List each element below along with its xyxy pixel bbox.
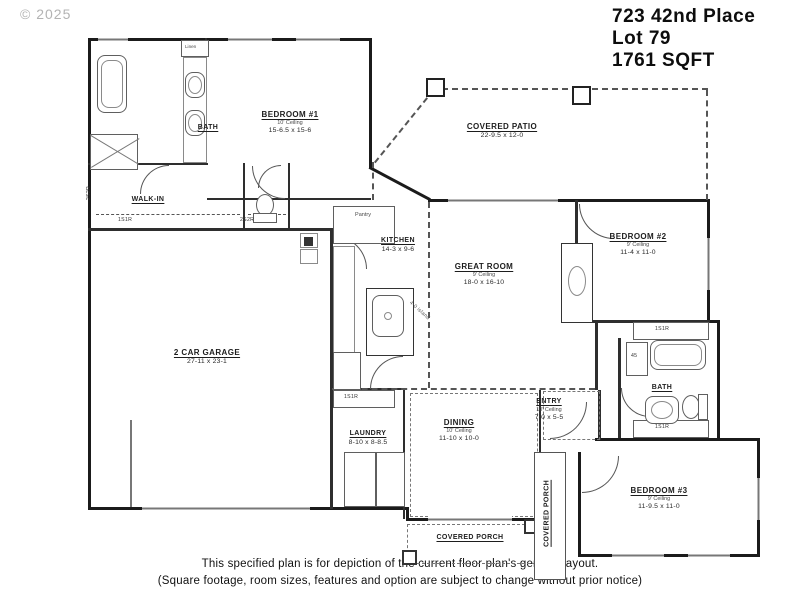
room-label-bedroom3: BEDROOM #3 9' Ceiling 11-9.5 x 11-0 xyxy=(598,486,720,511)
garage-door xyxy=(142,505,310,512)
room-name: BEDROOM #3 xyxy=(598,486,720,496)
dash-patio-diagonal xyxy=(374,90,434,164)
garage-step-line xyxy=(130,420,132,507)
closet-tag-1s1r: 1S1R xyxy=(655,424,669,430)
toilet-tank xyxy=(253,213,277,223)
washer-icon xyxy=(344,452,376,507)
wall-bath2-right xyxy=(717,320,720,441)
porch-post xyxy=(402,550,417,565)
room-dims: 11-4 x 11-0 xyxy=(580,249,696,257)
room-label-porch: COVERED PORCH xyxy=(410,534,530,543)
range-icon xyxy=(304,237,313,246)
patio-post xyxy=(572,86,591,105)
fireplace-inner xyxy=(568,266,586,296)
linen-label: Linen xyxy=(185,44,196,49)
toilet-tank xyxy=(698,394,708,420)
fridge-icon xyxy=(333,352,361,390)
closet-tag-2s2r: 2S2R xyxy=(240,217,254,223)
island-faucet-dot xyxy=(384,312,392,320)
closet-box xyxy=(633,322,709,340)
title-lot: Lot 79 xyxy=(612,28,755,50)
patio-post xyxy=(426,78,445,97)
bathtub-inner xyxy=(101,60,123,108)
closet-tag-1s1r: 1S1R xyxy=(655,326,669,332)
wall-bed3-left xyxy=(578,452,581,557)
wall-bed1-right xyxy=(369,38,372,168)
copyright-note: © 2025 xyxy=(20,6,71,22)
dryer-icon xyxy=(376,452,405,507)
door-arc-walkin xyxy=(140,165,169,194)
room-label-great: GREAT ROOM 9' Ceiling 18-0 x 16-10 xyxy=(428,262,540,287)
room-label-porch-side: COVERED PORCH xyxy=(544,458,553,568)
closet-shelf-dash xyxy=(96,214,240,215)
room-dims: 7-0 x 5-5 xyxy=(512,414,586,422)
wall-great-se xyxy=(595,320,598,390)
room-name: LAUNDRY xyxy=(324,430,412,439)
room-dims: 8-10 x 8-8.5 xyxy=(324,439,412,447)
room-dims: 27-11 x 23-1 xyxy=(145,358,269,366)
room-name: KITCHEN xyxy=(356,237,440,246)
room-dims: 18-0 x 16-10 xyxy=(428,279,540,287)
disclaimer-text: This specified plan is for depiction of … xyxy=(0,556,800,589)
room-name: BEDROOM #1 xyxy=(228,110,352,120)
room-name: COVERED PORCH xyxy=(544,458,553,568)
closet-tag-2s2r-vert: 2S2R xyxy=(86,186,92,200)
window-dining xyxy=(428,516,512,523)
disclaimer-line1: This specified plan is for depiction of … xyxy=(0,556,800,573)
window-bed3-b xyxy=(688,552,730,559)
dash-patio-right xyxy=(706,90,708,200)
room-name: BEDROOM #2 xyxy=(580,232,696,242)
bathtub2-inner xyxy=(654,344,702,366)
laundry-closet xyxy=(333,390,395,408)
window-bath1 xyxy=(98,36,128,43)
patio-slider-door xyxy=(448,197,558,204)
room-name: DINING xyxy=(410,418,508,428)
wall-bed3-bottom xyxy=(580,554,760,557)
room-label-walkin: WALK-IN xyxy=(108,196,188,205)
room-label-pantry: Pantry xyxy=(338,212,388,219)
room-name: GREAT ROOM xyxy=(428,262,540,272)
dash-patio-left xyxy=(372,162,374,200)
room-label-laundry: LAUNDRY 8-10 x 8-8.5 xyxy=(324,430,412,447)
room-name: 2 CAR GARAGE xyxy=(145,348,269,358)
door-arc-laundry xyxy=(370,356,403,389)
dash-patio-top xyxy=(432,88,708,90)
dash-kitchen-great xyxy=(428,202,430,388)
title-sqft: 1761 SQFT xyxy=(612,50,755,72)
room-ceiling: 10' Ceiling xyxy=(228,120,352,127)
dash-porch-outline xyxy=(407,524,535,564)
utility-box xyxy=(300,249,318,264)
room-ceiling: 9' Ceiling xyxy=(428,272,540,279)
room-ceiling: 10' Ceiling xyxy=(410,428,508,435)
window-bed2 xyxy=(705,238,712,290)
floor-plan-sheet: © 2025 723 42nd Place Lot 79 1761 SQFT T… xyxy=(0,0,800,600)
closet-tag-1s1r: 1S1R xyxy=(344,394,358,400)
room-name: BATH xyxy=(634,384,690,393)
closet-tag-1s1r: 1S1R xyxy=(118,217,132,223)
wall-left xyxy=(88,38,91,510)
room-label-bath2: BATH xyxy=(634,384,690,393)
window-bed3-a xyxy=(612,552,664,559)
room-label-patio: COVERED PATIO 22-9.5 x 12-0 xyxy=(440,122,564,140)
wall-step2 xyxy=(717,438,760,441)
room-name: Pantry xyxy=(338,212,388,219)
room-label-bedroom2: BEDROOM #2 9' Ceiling 11-4 x 11-0 xyxy=(580,232,696,257)
room-dims: 15-6.5 x 15-6 xyxy=(228,127,352,135)
window-bed1-b xyxy=(296,36,340,43)
window-bed3-c xyxy=(755,478,762,520)
room-label-garage: 2 CAR GARAGE 27-11 x 23-1 xyxy=(145,348,269,366)
room-name: COVERED PORCH xyxy=(410,534,530,543)
window-bed1-a xyxy=(228,36,272,43)
plan-title-block: 723 42nd Place Lot 79 1761 SQFT xyxy=(612,6,755,72)
wall-diagonal-nook xyxy=(369,166,431,201)
room-dims: 11-9.5 x 11-0 xyxy=(598,503,720,511)
wall-toilet-right xyxy=(288,163,290,231)
wall-garage-top xyxy=(88,228,334,231)
room-label-dining: DINING 10' Ceiling 11-10 x 10-0 xyxy=(410,418,508,443)
room-dims: 22-9.5 x 12-0 xyxy=(440,132,564,140)
room-name: WALK-IN xyxy=(108,196,188,205)
wall-bath2-bottom xyxy=(595,438,720,441)
room-label-entry: ENTRY 10' Ceiling 7-0 x 5-5 xyxy=(512,398,586,422)
room-name: COVERED PATIO xyxy=(440,122,564,132)
cabinet-45 xyxy=(626,342,648,376)
room-name: ENTRY xyxy=(512,398,586,407)
room-dims: 14-3 x 9-6 xyxy=(356,246,440,254)
room-ceiling: 10' Ceiling xyxy=(512,407,586,414)
sink-bowl xyxy=(188,76,202,94)
room-ceiling: 9' Ceiling xyxy=(598,496,720,503)
room-dims: 11-10 x 10-0 xyxy=(410,435,508,443)
disclaimer-line2: (Square footage, room sizes, features an… xyxy=(0,573,800,590)
cabinet-45-label: 45 xyxy=(631,353,637,359)
wall-bed1-bottom xyxy=(207,198,371,200)
title-address: 723 42nd Place xyxy=(612,6,755,28)
sink-bowl xyxy=(651,401,673,419)
room-label-bedroom1: BEDROOM #1 10' Ceiling 15-6.5 x 15-6 xyxy=(228,110,352,135)
room-ceiling: 9' Ceiling xyxy=(580,242,696,249)
room-label-kitchen: KITCHEN 14-3 x 9-6 xyxy=(356,237,440,254)
